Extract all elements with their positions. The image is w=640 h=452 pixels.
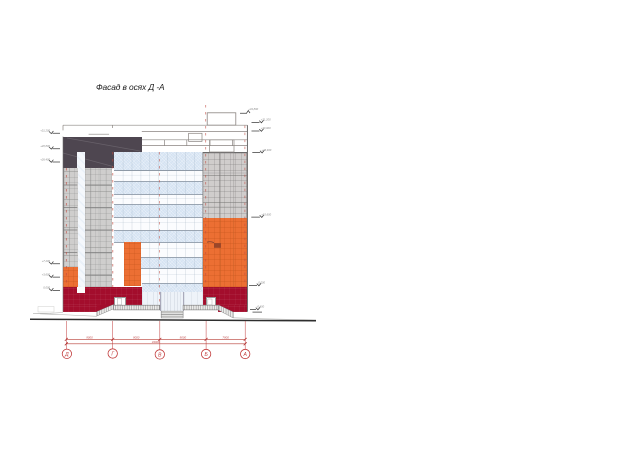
svg-text:0,000: 0,000 bbox=[43, 286, 50, 290]
svg-text:+7,200: +7,200 bbox=[42, 259, 51, 263]
svg-text:9000: 9000 bbox=[86, 336, 93, 340]
svg-text:Д: Д bbox=[64, 352, 69, 358]
svg-text:А: А bbox=[243, 352, 248, 358]
svg-text:+31,200: +31,200 bbox=[261, 118, 271, 122]
svg-text:7900: 7900 bbox=[222, 336, 229, 340]
svg-text:-0,450: -0,450 bbox=[257, 305, 265, 309]
svg-text:+28,800: +28,800 bbox=[40, 144, 50, 148]
svg-text:34900: 34900 bbox=[152, 340, 160, 344]
svg-text:+15,600: +15,600 bbox=[261, 212, 271, 216]
svg-text:В: В bbox=[158, 352, 162, 358]
svg-text:0,000: 0,000 bbox=[258, 281, 265, 285]
svg-text:+31,200: +31,200 bbox=[40, 129, 50, 133]
svg-text:9000: 9000 bbox=[133, 336, 140, 340]
svg-text:+26,400: +26,400 bbox=[262, 148, 272, 152]
svg-text:+3,600: +3,600 bbox=[42, 272, 51, 276]
svg-text:Б: Б bbox=[204, 352, 208, 358]
svg-text:+34,800: +34,800 bbox=[248, 107, 258, 111]
svg-text:Г: Г bbox=[111, 352, 115, 358]
svg-text:9000: 9000 bbox=[180, 336, 187, 340]
svg-text:+30,000: +30,000 bbox=[261, 126, 271, 130]
svg-text:+26,400: +26,400 bbox=[40, 157, 50, 161]
